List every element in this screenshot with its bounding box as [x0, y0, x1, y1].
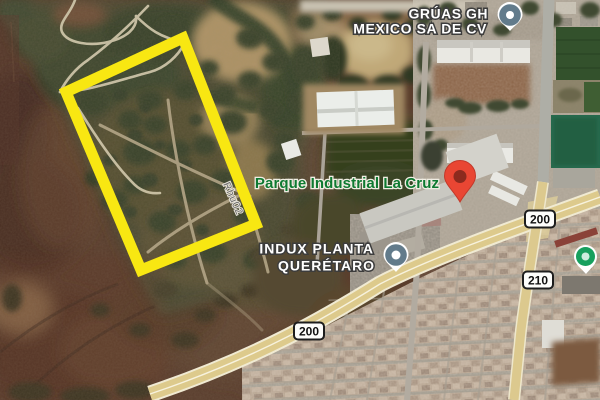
- svg-text:210: 210: [528, 274, 548, 288]
- svg-text:QUERÉTARO: QUERÉTARO: [278, 258, 375, 274]
- svg-text:GRÚAS GH: GRÚAS GH: [409, 5, 488, 22]
- svg-text:200: 200: [530, 213, 550, 227]
- svg-text:200: 200: [299, 325, 319, 339]
- svg-text:Parque Industrial La Cruz: Parque Industrial La Cruz: [255, 175, 439, 192]
- svg-text:MEXICO SA DE CV: MEXICO SA DE CV: [353, 21, 487, 37]
- svg-text:INDUX PLANTA: INDUX PLANTA: [259, 241, 374, 257]
